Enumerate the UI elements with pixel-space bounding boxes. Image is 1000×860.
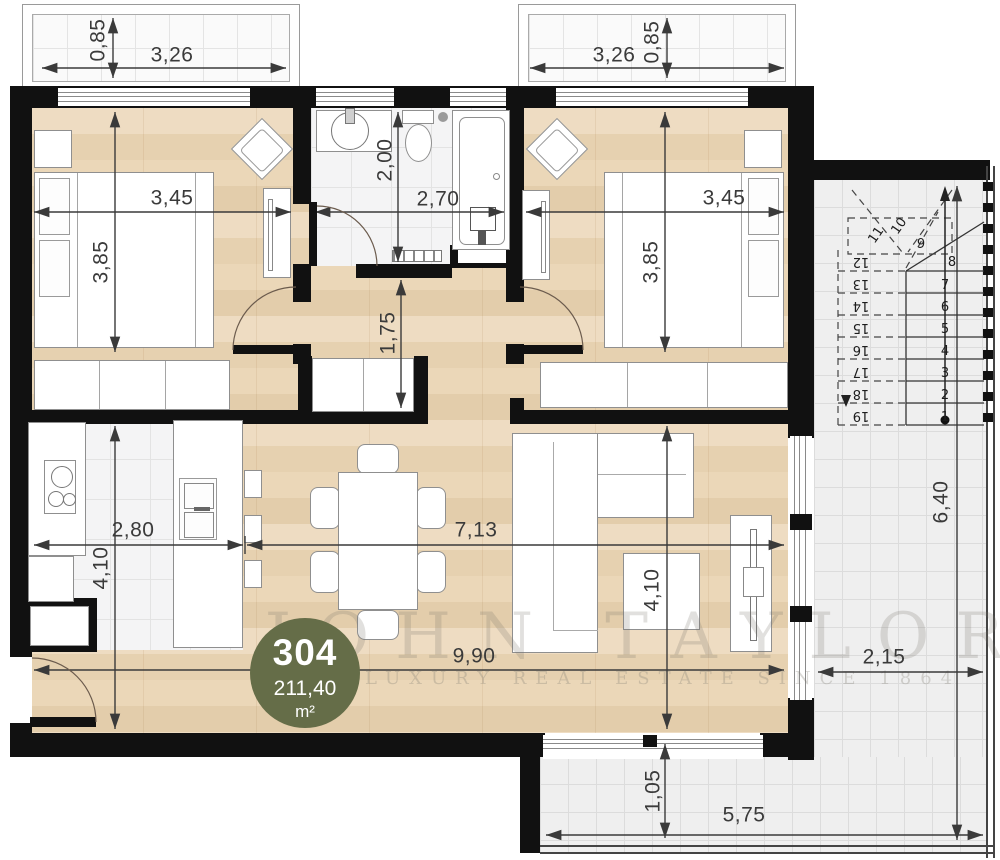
wall-bedroomL-bath [293, 100, 311, 204]
tv-screen [268, 199, 273, 271]
tub-drain [493, 173, 500, 180]
window-bath-2 [450, 88, 506, 106]
dining-chair [416, 487, 446, 529]
dining-chair [357, 444, 399, 474]
dim-terraceR-width: 2,15 [863, 647, 906, 668]
unit-area-unit: m² [250, 702, 360, 722]
wall-living-top [510, 410, 788, 424]
dim-bedroomR-width: 3,45 [703, 188, 746, 209]
sink-bowl [184, 483, 214, 509]
dining-chair [310, 551, 340, 593]
dim-hallway: 1,75 [378, 312, 399, 355]
window-bedroomR [556, 88, 748, 106]
unit-number: 304 [250, 632, 360, 674]
toilet-tank [402, 110, 434, 124]
closet-bedroomR [540, 362, 788, 408]
dining-table [338, 472, 418, 610]
dim-kitchen-width: 2,80 [112, 520, 155, 541]
unit-area: 211,40 [250, 677, 360, 701]
wall-bottom-right-block [760, 733, 812, 757]
wall-hallcloset-left [298, 356, 312, 412]
nightstand-right [744, 130, 782, 168]
entrance-opening [10, 657, 32, 723]
wall-bath-stub [293, 264, 311, 302]
closet-bedroomL [34, 360, 230, 410]
wall-hallcloset-right [414, 356, 428, 424]
duvet-fold-line [622, 173, 623, 347]
headboard-line [77, 173, 78, 347]
terrace-right [814, 180, 986, 852]
toilet-bowl [405, 124, 432, 162]
dim-bedroomR-height: 3,85 [641, 241, 662, 284]
bar-stool [244, 515, 262, 543]
floor-plan-canvas: JOHN TAYLOR LUXURY REAL ESTATE SINCE 186… [0, 0, 1000, 860]
window-bath-1 [316, 88, 394, 106]
railing-bottom-inner [540, 852, 993, 854]
dim-terraceR-height: 6,40 [931, 481, 952, 524]
dim-living-width: 7,13 [455, 520, 498, 541]
dining-chair [310, 487, 340, 529]
tv-stand [743, 567, 764, 597]
railing-dashes [983, 182, 993, 422]
duvet-fold-line [195, 173, 196, 347]
dim-terraceB-height: 1,05 [643, 770, 664, 813]
dim-balcony-left-depth: 0,85 [88, 19, 109, 62]
toilet-paper-holder [438, 112, 448, 122]
closet-divider [627, 363, 628, 407]
tub-niche [458, 250, 508, 263]
wall-terrace-pier [520, 755, 540, 853]
dim-bathroom-height: 2,00 [375, 139, 396, 182]
pillow [748, 240, 779, 297]
wall-bedroomR-door-stub [506, 344, 524, 364]
island-faucet [194, 507, 210, 511]
nightstand-left [34, 130, 72, 168]
closet-divider [707, 363, 708, 407]
dim-total-width: 9,90 [453, 646, 496, 667]
dim-balcony-right-width: 3,26 [593, 45, 636, 66]
utility-niche [30, 606, 89, 646]
bed-right [604, 172, 784, 348]
tub-tap [478, 231, 486, 245]
dim-balcony-left-width: 3,26 [151, 45, 194, 66]
slider-mullion-3 [643, 735, 657, 747]
bar-stool [244, 470, 262, 498]
dim-balcony-right-depth: 0,85 [642, 21, 663, 64]
island-sink [179, 478, 217, 540]
watermark-tagline: LUXURY REAL ESTATE SINCE 1864 [365, 668, 961, 689]
wall-right-upper [788, 86, 814, 438]
dim-kitchen-height: 4,10 [91, 547, 112, 590]
pillow [39, 240, 70, 297]
dim-terraceB-width: 5,75 [723, 805, 766, 826]
stove [44, 460, 76, 514]
closet-divider [165, 361, 166, 409]
burner [48, 491, 64, 507]
pillow [39, 178, 70, 235]
bathtub [452, 110, 510, 250]
wall-bath-south [356, 264, 452, 278]
dim-bedroomL-width: 3,45 [151, 188, 194, 209]
dresser-tv-left [263, 188, 291, 278]
closet-hallway [312, 358, 414, 412]
wall-terrace-top [812, 160, 990, 180]
burner [51, 466, 73, 488]
burner [63, 493, 76, 506]
tub-fixture [470, 207, 496, 231]
railing-right-inner [993, 166, 995, 858]
dresser-tv-right [522, 190, 550, 280]
dim-bathroom-width: 2,70 [417, 189, 460, 210]
bar-stool [244, 560, 262, 588]
wall-bottom [10, 733, 545, 757]
unit-badge: 304 211,40 m² [250, 618, 360, 728]
faucet [345, 108, 355, 124]
dim-bedroomL-height: 3,85 [91, 241, 112, 284]
kitchen-cabinet [28, 556, 74, 602]
dining-chair [416, 551, 446, 593]
tv-screen [541, 201, 546, 273]
sink-bowl [184, 512, 214, 538]
railing-bottom-outer [540, 845, 993, 847]
slider-mullion-1 [790, 514, 812, 530]
radiator [392, 250, 442, 262]
closet-divider [99, 361, 100, 409]
dim-living-height: 4,10 [642, 569, 663, 612]
pillow [748, 178, 779, 235]
closet-divider [363, 359, 364, 411]
window-bedroomL [58, 88, 250, 106]
